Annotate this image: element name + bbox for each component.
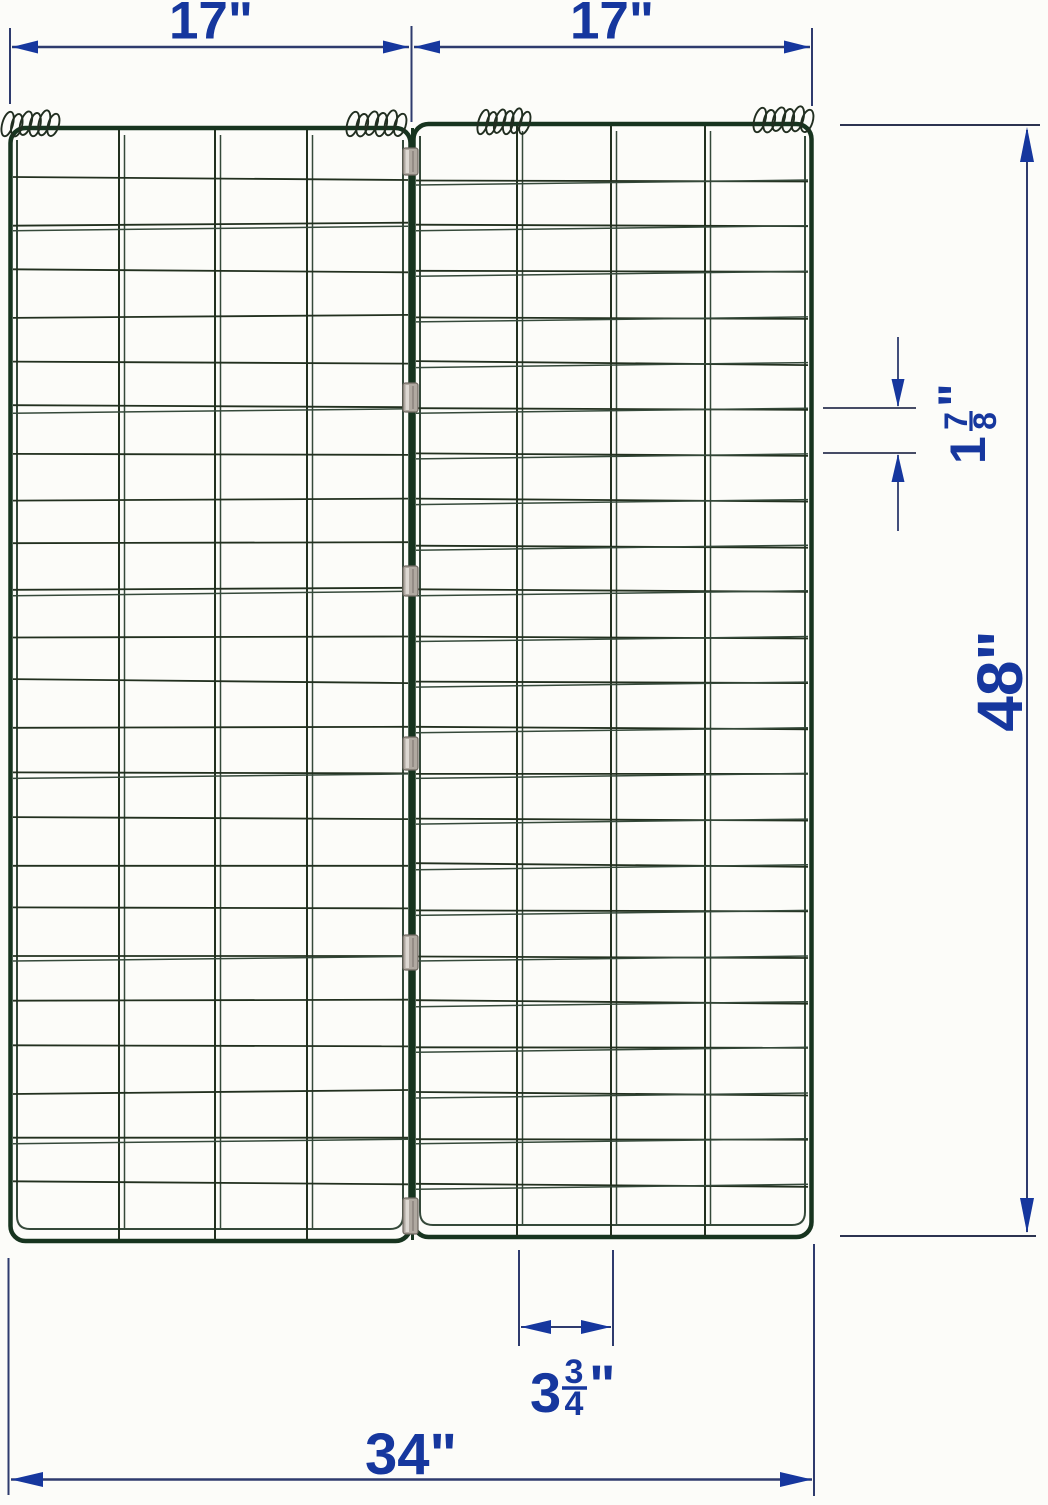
svg-text:1: 1: [940, 436, 996, 464]
svg-text:": ": [589, 1353, 616, 1416]
svg-text:34": 34": [365, 1422, 457, 1487]
svg-text:3: 3: [530, 1361, 561, 1424]
svg-text:48": 48": [964, 630, 1036, 732]
svg-text:": ": [928, 383, 984, 407]
svg-text:17": 17": [169, 0, 253, 51]
svg-text:4: 4: [565, 1385, 584, 1423]
svg-text:8: 8: [967, 412, 1003, 430]
svg-text:17": 17": [570, 0, 654, 51]
